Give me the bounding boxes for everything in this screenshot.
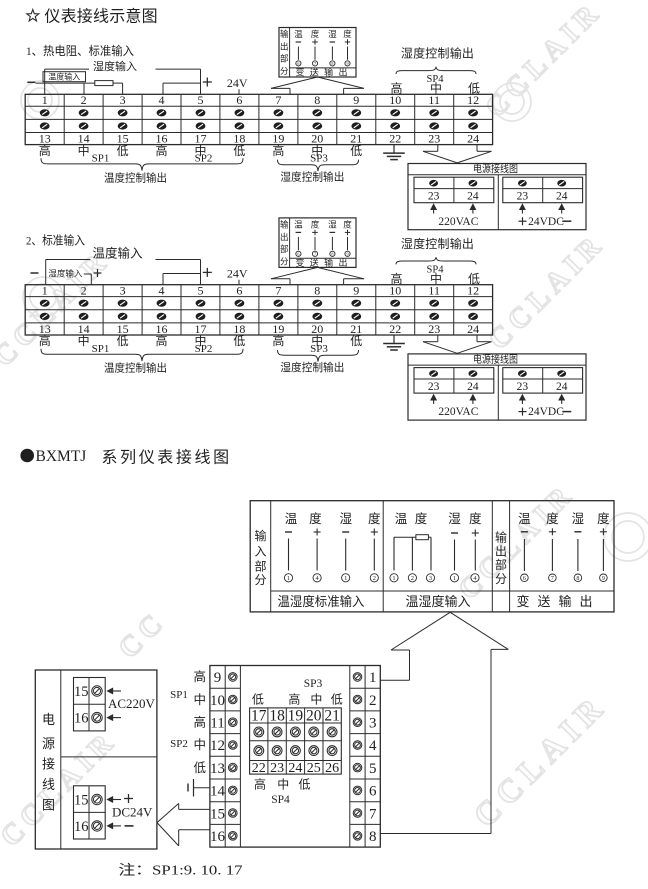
svg-text:2: 2 [411, 575, 414, 582]
svg-text:9: 9 [353, 93, 359, 107]
svg-text:7: 7 [314, 61, 316, 66]
svg-text:1: 1 [453, 575, 456, 582]
svg-text:送: 送 [310, 67, 319, 78]
svg-text:低: 低 [233, 334, 245, 348]
svg-text:出: 出 [338, 67, 347, 78]
svg-text:3: 3 [429, 575, 432, 582]
svg-text:3: 3 [120, 93, 126, 107]
svg-text:高: 高 [155, 143, 167, 158]
svg-text:高: 高 [39, 143, 51, 158]
svg-text:出: 出 [495, 544, 507, 558]
svg-text:仪表接线示意图: 仪表接线示意图 [44, 7, 157, 26]
svg-text:度: 度 [597, 511, 610, 526]
svg-text:低: 低 [117, 144, 129, 158]
svg-text:图: 图 [42, 797, 55, 812]
svg-text:SP1: SP1 [170, 689, 188, 701]
svg-text:13: 13 [210, 761, 225, 777]
svg-text:DC24V: DC24V [112, 805, 153, 820]
svg-text:温湿度标准输入: 温湿度标准输入 [278, 594, 365, 609]
svg-text:6: 6 [523, 576, 526, 582]
svg-text:6: 6 [369, 784, 377, 800]
svg-text:24V: 24V [227, 267, 248, 281]
svg-text:部: 部 [280, 54, 289, 64]
svg-text:23: 23 [428, 322, 440, 336]
svg-text:BXMTJ: BXMTJ [36, 448, 87, 465]
svg-text:15: 15 [74, 793, 89, 809]
svg-text:高: 高 [194, 715, 207, 730]
svg-text:度: 度 [309, 511, 322, 526]
svg-text:SP3: SP3 [304, 678, 323, 690]
svg-text:变: 变 [295, 257, 304, 268]
svg-text:24: 24 [467, 381, 479, 393]
svg-text:输: 输 [254, 528, 266, 543]
svg-text:度: 度 [546, 511, 559, 526]
svg-text:9: 9 [346, 61, 348, 66]
svg-text:低: 低 [350, 334, 362, 348]
svg-text:12: 12 [467, 93, 479, 107]
svg-text:注：SP1:9. 10. 17: 注：SP1:9. 10. 17 [119, 863, 243, 878]
svg-text:7: 7 [551, 576, 554, 582]
svg-text:SP2: SP2 [195, 153, 213, 165]
svg-text:部: 部 [254, 559, 266, 574]
svg-text:8: 8 [331, 251, 333, 256]
svg-text:5: 5 [369, 761, 377, 777]
svg-text:15: 15 [210, 806, 225, 822]
svg-text:低: 低 [117, 334, 129, 348]
svg-text:1: 1 [369, 670, 377, 686]
svg-text:18: 18 [269, 707, 285, 724]
svg-text:4: 4 [159, 93, 165, 107]
svg-text:16: 16 [74, 711, 89, 727]
svg-text:SP1: SP1 [92, 153, 110, 165]
svg-text:分: 分 [280, 256, 289, 266]
svg-text:低: 低 [233, 144, 245, 158]
svg-text:温度输入: 温度输入 [93, 246, 144, 261]
svg-text:温: 温 [294, 29, 303, 39]
svg-text:21: 21 [324, 707, 340, 724]
svg-text:3: 3 [369, 716, 377, 732]
svg-text:度: 度 [343, 220, 352, 230]
svg-text:湿: 湿 [339, 511, 352, 526]
svg-text:湿度输入: 湿度输入 [48, 268, 83, 278]
svg-text:低: 低 [298, 777, 310, 791]
svg-text:220VAC: 220VAC [438, 406, 478, 418]
svg-text:分: 分 [280, 66, 289, 76]
svg-text:1: 1 [42, 93, 48, 107]
svg-text:送: 送 [537, 594, 550, 609]
svg-text:23: 23 [517, 381, 529, 393]
svg-text:20: 20 [306, 707, 322, 724]
svg-text:15: 15 [74, 684, 89, 700]
svg-text:SP2: SP2 [195, 343, 213, 355]
svg-text:电源接线图: 电源接线图 [473, 353, 518, 366]
svg-text:9: 9 [602, 576, 605, 582]
svg-text:低: 低 [252, 692, 264, 706]
svg-text:24: 24 [467, 322, 479, 336]
svg-text:SP1: SP1 [92, 343, 110, 355]
svg-text:9: 9 [346, 251, 348, 256]
svg-text:6: 6 [236, 284, 242, 298]
svg-text:24: 24 [556, 191, 568, 203]
svg-text:分: 分 [495, 572, 507, 586]
svg-text:系列仪表接线图: 系列仪表接线图 [102, 449, 232, 467]
svg-text:9: 9 [214, 670, 222, 686]
svg-text:度: 度 [343, 29, 352, 39]
svg-text:SP4: SP4 [271, 794, 290, 806]
svg-text:12: 12 [467, 284, 479, 298]
svg-text:11: 11 [428, 93, 440, 107]
svg-text:8: 8 [576, 576, 579, 582]
svg-text:2: 2 [81, 284, 87, 298]
svg-text:温: 温 [294, 220, 303, 230]
svg-text:湿度控制输出: 湿度控制输出 [401, 46, 474, 61]
svg-text:高: 高 [272, 143, 284, 158]
svg-text:源: 源 [42, 736, 55, 751]
svg-text:2: 2 [369, 693, 377, 709]
svg-text:高: 高 [194, 669, 207, 684]
svg-text:度: 度 [311, 220, 320, 230]
svg-text:24: 24 [556, 381, 568, 393]
svg-text:高: 高 [39, 333, 51, 348]
svg-text:中: 中 [277, 776, 289, 791]
svg-text:8: 8 [331, 61, 333, 66]
svg-text:入: 入 [254, 545, 266, 559]
svg-text:高: 高 [155, 333, 167, 348]
svg-text:接: 接 [42, 756, 55, 771]
svg-text:7: 7 [314, 251, 316, 256]
svg-text:24: 24 [467, 191, 479, 203]
svg-text:湿: 湿 [572, 511, 585, 526]
svg-text:24: 24 [288, 761, 302, 776]
svg-text:23: 23 [428, 191, 440, 203]
svg-text:输: 输 [324, 67, 333, 78]
svg-text:3: 3 [120, 284, 126, 298]
svg-text:湿: 湿 [448, 511, 461, 526]
svg-text:SP3: SP3 [310, 153, 328, 165]
svg-text:11: 11 [210, 716, 224, 732]
svg-text:部: 部 [280, 244, 289, 254]
svg-text:22: 22 [389, 322, 401, 336]
svg-text:1、热电阻、标准输入: 1、热电阻、标准输入 [26, 43, 134, 58]
svg-text:16: 16 [74, 819, 89, 835]
svg-text:4: 4 [369, 738, 377, 754]
svg-text:4: 4 [159, 284, 165, 298]
svg-text:6: 6 [297, 61, 299, 66]
svg-text:6: 6 [236, 93, 242, 107]
svg-text:26: 26 [325, 761, 339, 776]
svg-text:温度输入: 温度输入 [48, 71, 80, 81]
svg-text:22: 22 [389, 132, 401, 146]
svg-text:输: 输 [324, 257, 333, 268]
svg-text:中: 中 [194, 737, 207, 752]
svg-text:输: 输 [558, 594, 571, 609]
svg-text:9: 9 [353, 284, 359, 298]
svg-text:湿度输入: 湿度输入 [93, 59, 137, 73]
svg-text:中: 中 [78, 333, 90, 348]
svg-text:温湿度输入: 温湿度输入 [406, 594, 471, 609]
svg-text:17: 17 [251, 707, 267, 724]
svg-text:输: 输 [495, 530, 507, 545]
svg-text:温度控制输出: 温度控制输出 [104, 170, 167, 184]
svg-text:23: 23 [270, 761, 284, 776]
svg-text:10: 10 [210, 693, 225, 709]
svg-text:220VAC: 220VAC [438, 216, 478, 228]
svg-text:中: 中 [310, 691, 322, 706]
svg-text:1: 1 [392, 575, 395, 582]
svg-text:7: 7 [275, 284, 281, 298]
svg-text:2: 2 [373, 575, 376, 582]
svg-text:温度控制输出: 温度控制输出 [104, 361, 167, 375]
svg-text:1: 1 [42, 284, 48, 298]
svg-text:度: 度 [415, 511, 428, 526]
svg-text:11: 11 [428, 284, 440, 298]
svg-text:送: 送 [310, 257, 319, 268]
svg-text:5: 5 [198, 284, 204, 298]
svg-text:出: 出 [338, 257, 347, 268]
svg-text:24V: 24V [227, 76, 248, 90]
svg-text:7: 7 [275, 93, 281, 107]
svg-text:23: 23 [517, 191, 529, 203]
svg-text:高: 高 [254, 776, 266, 791]
svg-text:25: 25 [307, 761, 321, 776]
svg-text:湿: 湿 [328, 220, 337, 230]
svg-text:度: 度 [311, 29, 320, 39]
svg-text:23: 23 [428, 132, 440, 146]
svg-text:SP3: SP3 [310, 343, 328, 355]
svg-text:22: 22 [252, 761, 266, 776]
svg-text:输: 输 [280, 29, 289, 39]
svg-text:12: 12 [210, 738, 225, 754]
svg-text:SP2: SP2 [170, 738, 188, 750]
svg-text:变: 变 [295, 67, 304, 78]
svg-text:24VDC: 24VDC [528, 406, 564, 418]
svg-text:24: 24 [467, 132, 479, 146]
svg-text:温: 温 [285, 512, 298, 526]
svg-text:线: 线 [42, 777, 55, 792]
svg-text:中: 中 [78, 143, 90, 158]
svg-text:温: 温 [518, 512, 531, 526]
svg-text:6: 6 [297, 251, 299, 256]
svg-text:湿度控制输出: 湿度控制输出 [280, 360, 344, 374]
svg-text:度: 度 [368, 511, 381, 526]
svg-text:AC220V: AC220V [108, 696, 156, 711]
svg-text:19: 19 [288, 707, 304, 724]
svg-text:温: 温 [395, 512, 408, 526]
svg-text:高: 高 [272, 333, 284, 348]
svg-text:低: 低 [350, 144, 362, 158]
svg-text:中: 中 [194, 692, 207, 707]
svg-text:出: 出 [280, 232, 289, 242]
svg-text:出: 出 [280, 41, 289, 51]
svg-text:23: 23 [428, 381, 440, 393]
svg-text:湿度控制输出: 湿度控制输出 [280, 169, 344, 183]
svg-text:低: 低 [194, 761, 207, 775]
svg-text:输: 输 [280, 220, 289, 230]
svg-text:湿: 湿 [328, 29, 337, 39]
svg-text:部: 部 [495, 557, 507, 572]
svg-text:湿度控制输出: 湿度控制输出 [401, 236, 474, 251]
svg-text:5: 5 [198, 93, 204, 107]
svg-text:16: 16 [210, 829, 226, 845]
svg-text:分: 分 [254, 573, 266, 587]
svg-text:24VDC: 24VDC [528, 216, 564, 228]
svg-text:14: 14 [210, 784, 226, 800]
svg-text:出: 出 [579, 594, 592, 609]
svg-text:度: 度 [469, 511, 482, 526]
svg-text:8: 8 [314, 284, 320, 298]
svg-text:7: 7 [369, 806, 377, 822]
svg-text:8: 8 [314, 93, 320, 107]
svg-text:低: 低 [331, 692, 343, 706]
svg-text:电: 电 [42, 712, 55, 727]
svg-text:10: 10 [389, 284, 401, 298]
svg-text:2、标准输入: 2、标准输入 [26, 233, 85, 248]
svg-text:10: 10 [389, 93, 401, 107]
svg-text:2: 2 [81, 93, 87, 107]
svg-text:高: 高 [288, 691, 300, 706]
svg-text:8: 8 [369, 829, 377, 845]
svg-text:1: 1 [344, 575, 347, 582]
svg-text:1: 1 [287, 575, 290, 582]
svg-text:电源接线图: 电源接线图 [473, 162, 518, 175]
svg-text:变: 变 [516, 594, 529, 609]
